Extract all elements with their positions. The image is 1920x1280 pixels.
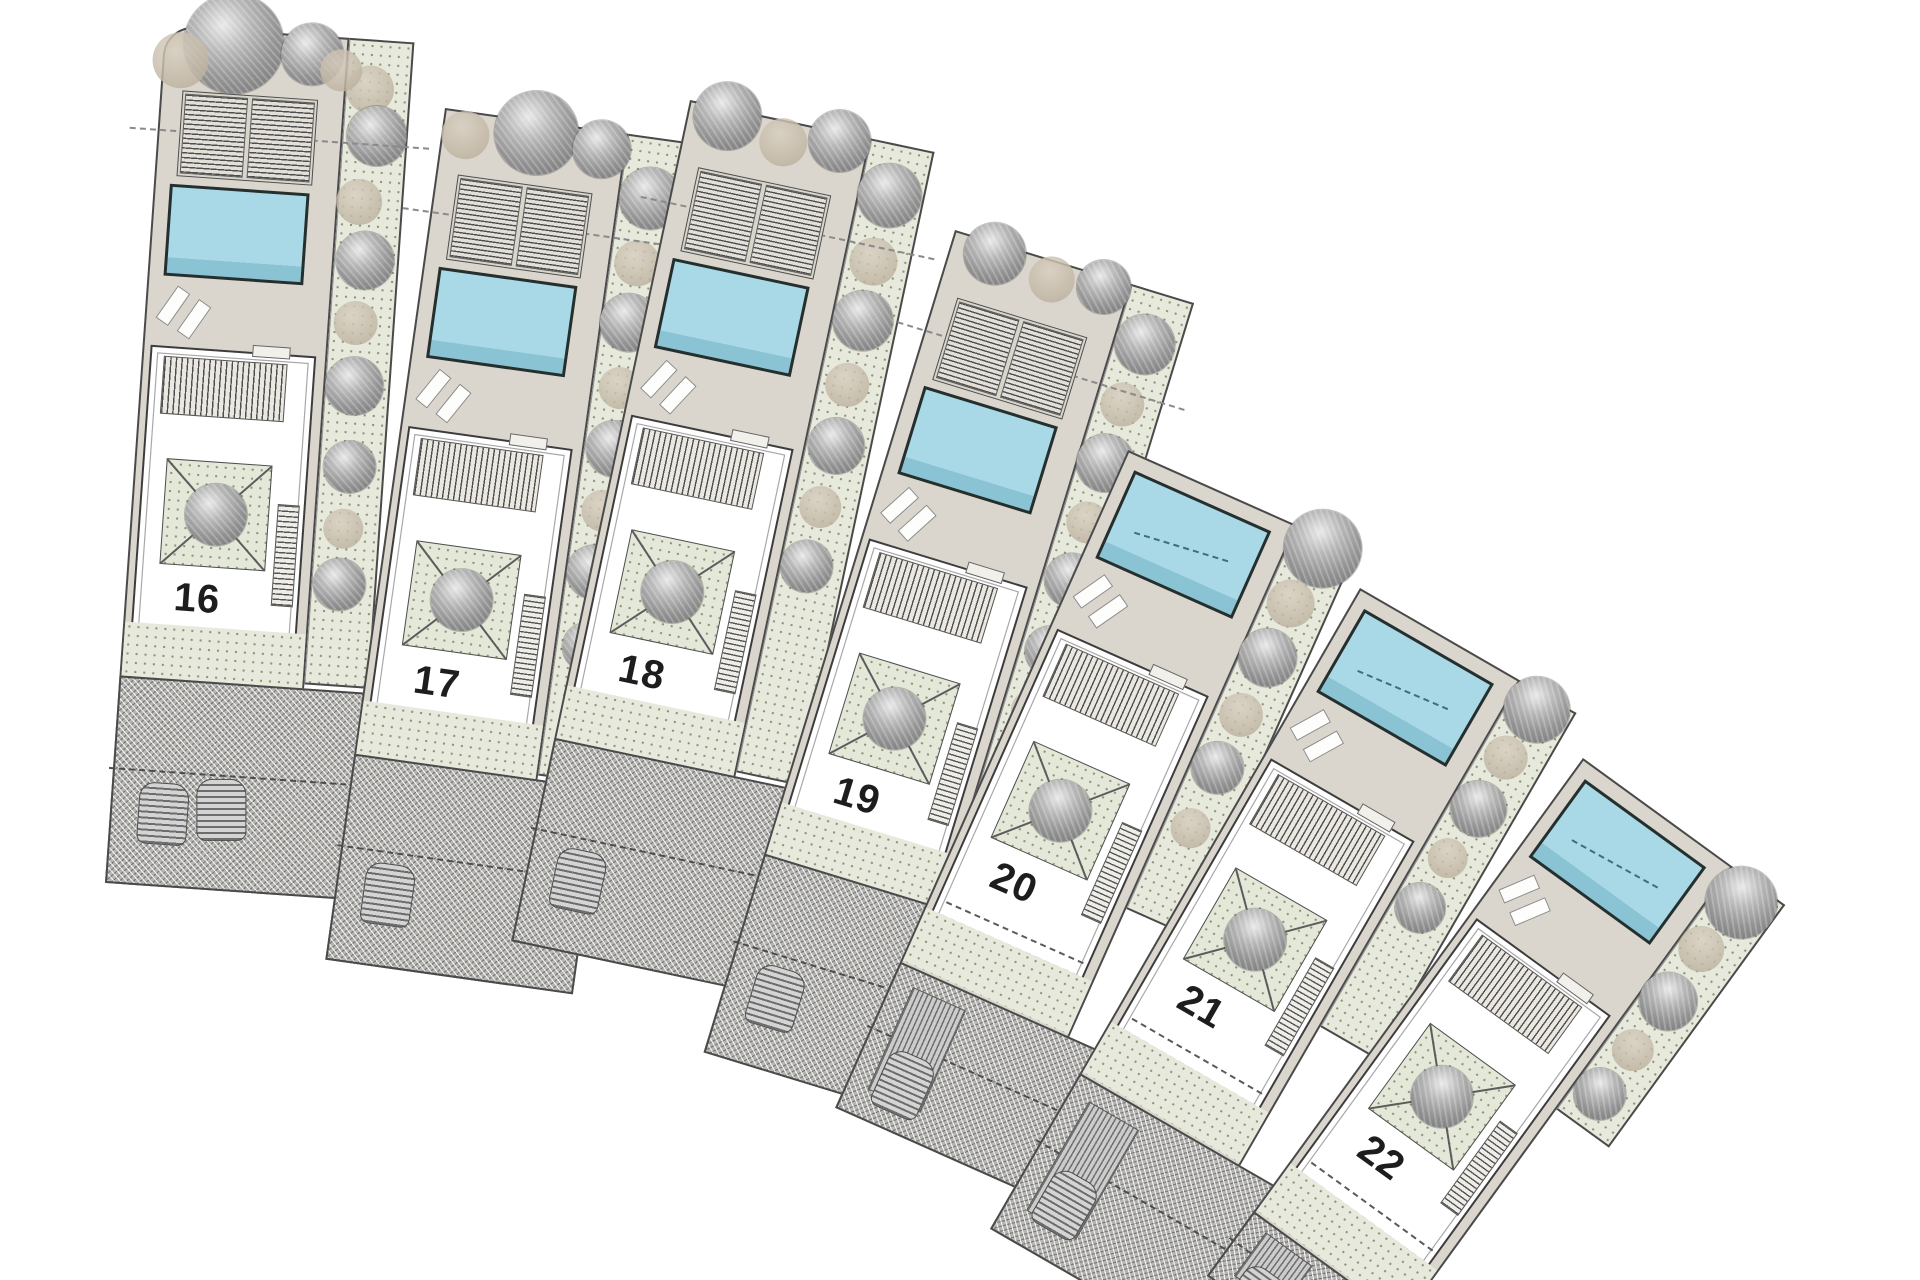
- courtyard-tree-icon: [856, 680, 933, 757]
- shrub-icon: [438, 108, 492, 162]
- pergola-deck: [176, 90, 318, 185]
- courtyard: [402, 540, 522, 660]
- roof-deck-band: [160, 356, 288, 423]
- shrub-icon: [821, 359, 873, 411]
- tree-icon: [312, 557, 368, 613]
- sun-loungers: [421, 368, 498, 429]
- tree-icon: [489, 86, 584, 181]
- pool-depth-dash: [1134, 531, 1228, 562]
- tree-icon: [956, 215, 1033, 292]
- car-icon: [359, 861, 417, 929]
- car-icon: [196, 779, 246, 841]
- courtyard-tree-icon: [427, 565, 497, 635]
- tree-icon: [776, 536, 838, 598]
- shrub-icon: [332, 300, 379, 347]
- lounger-icon: [1509, 897, 1551, 926]
- shrub-icon: [1212, 686, 1270, 744]
- tree-icon: [334, 230, 396, 292]
- pergola-panel: [684, 171, 762, 262]
- side-steps: [271, 504, 300, 607]
- car-icon: [547, 845, 609, 916]
- entry-step: [252, 345, 291, 360]
- tree-icon: [827, 285, 898, 356]
- car-icon: [743, 961, 809, 1035]
- courtyard: [828, 652, 960, 784]
- pergola-panel: [516, 187, 590, 275]
- tree-icon: [687, 76, 768, 157]
- pool-depth-dash: [1571, 839, 1658, 888]
- top-garden-strip: [161, 15, 351, 100]
- pool-depth-dash: [1357, 670, 1448, 710]
- shrub-icon: [335, 177, 384, 226]
- tree-icon: [323, 355, 385, 417]
- lot-number: 16: [140, 573, 255, 626]
- shrub-icon: [1164, 802, 1217, 855]
- courtyard-tree-icon: [1213, 897, 1298, 982]
- shrub-icon: [795, 482, 845, 532]
- swimming-pool: [426, 267, 577, 378]
- courtyard-tree-icon: [1020, 770, 1102, 852]
- site-plan: 16: [0, 0, 1920, 1280]
- tree-icon: [322, 439, 378, 495]
- driveway-road: [105, 675, 369, 900]
- shrub-icon: [755, 114, 812, 171]
- pergola-panel: [449, 178, 523, 266]
- pergola-panel: [749, 185, 827, 276]
- sun-loungers: [163, 286, 236, 343]
- tree-icon: [345, 104, 409, 168]
- courtyard: [609, 529, 735, 655]
- courtyard-tree-icon: [1399, 1053, 1486, 1140]
- pergola-panel: [247, 98, 315, 182]
- shrub-icon: [1023, 251, 1080, 308]
- courtyard-tree-icon: [636, 555, 710, 629]
- shrub-icon: [322, 507, 365, 550]
- roof-deck-band: [413, 438, 544, 513]
- swimming-pool: [164, 184, 310, 286]
- car-icon: [136, 781, 190, 846]
- shrub-icon: [1420, 831, 1475, 886]
- lounger-icon: [1303, 730, 1344, 762]
- courtyard-tree-icon: [183, 482, 249, 548]
- pergola-panel: [180, 94, 248, 178]
- tree-icon: [803, 413, 869, 479]
- courtyard: [159, 458, 272, 571]
